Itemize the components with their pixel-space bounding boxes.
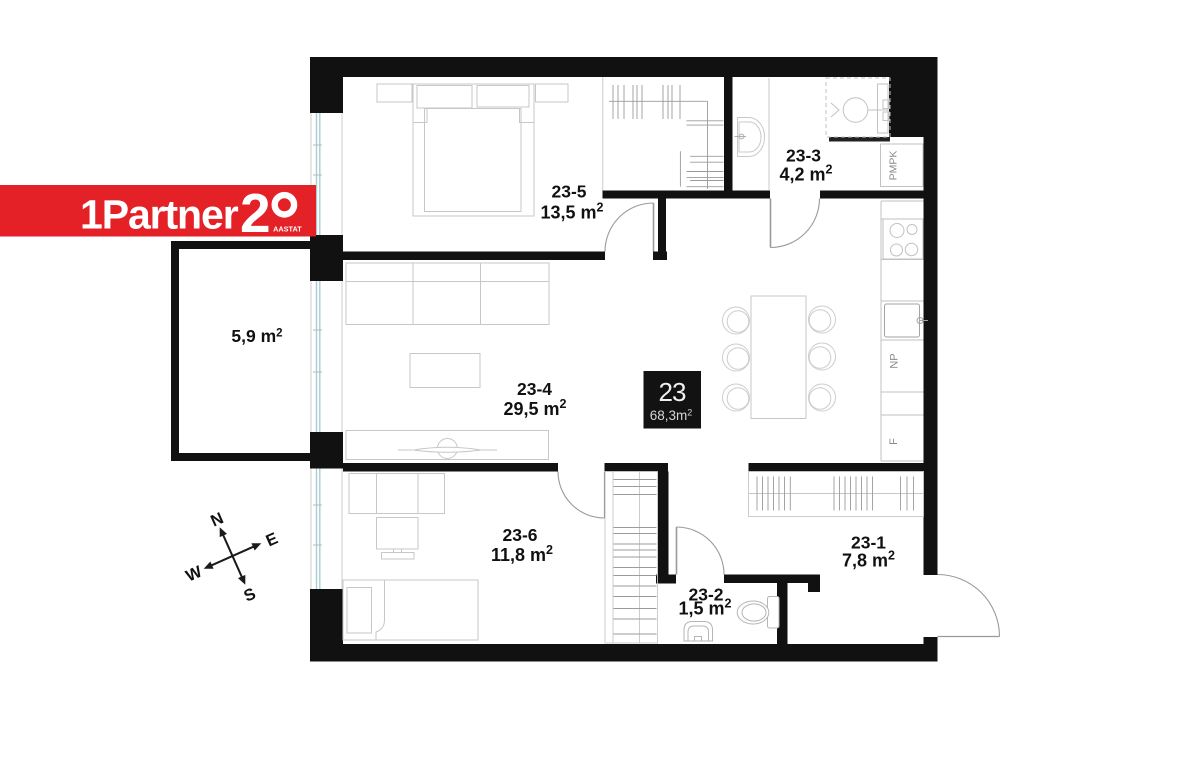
svg-text:N: N — [208, 509, 226, 530]
svg-text:1Partner: 1Partner — [80, 192, 239, 238]
svg-text:11,8 m2: 11,8 m2 — [491, 543, 553, 565]
svg-text:23-3: 23-3 — [786, 146, 821, 166]
svg-text:PMPK: PMPK — [888, 151, 900, 181]
svg-text:23: 23 — [659, 377, 686, 407]
svg-text:1,5 m2: 1,5 m2 — [679, 597, 732, 619]
svg-text:23-6: 23-6 — [502, 525, 537, 545]
svg-text:F: F — [888, 438, 900, 445]
svg-text:E: E — [263, 529, 280, 550]
svg-text:4,2 m2: 4,2 m2 — [780, 163, 833, 185]
svg-text:23-5: 23-5 — [551, 182, 586, 202]
svg-text:7,8 m2: 7,8 m2 — [842, 549, 895, 571]
svg-text:29,5 m2: 29,5 m2 — [504, 397, 567, 419]
svg-text:AASTAT: AASTAT — [273, 225, 302, 234]
svg-text:13,5 m2: 13,5 m2 — [541, 201, 604, 223]
svg-text:5,9 m2: 5,9 m2 — [231, 326, 282, 346]
svg-text:NP: NP — [889, 353, 901, 368]
svg-text:23-1: 23-1 — [851, 533, 886, 553]
svg-text:23-4: 23-4 — [517, 379, 552, 399]
svg-text:68,3m2: 68,3m2 — [650, 408, 693, 424]
svg-text:S: S — [241, 585, 258, 606]
svg-text:W: W — [183, 563, 205, 586]
svg-text:2: 2 — [240, 182, 271, 244]
